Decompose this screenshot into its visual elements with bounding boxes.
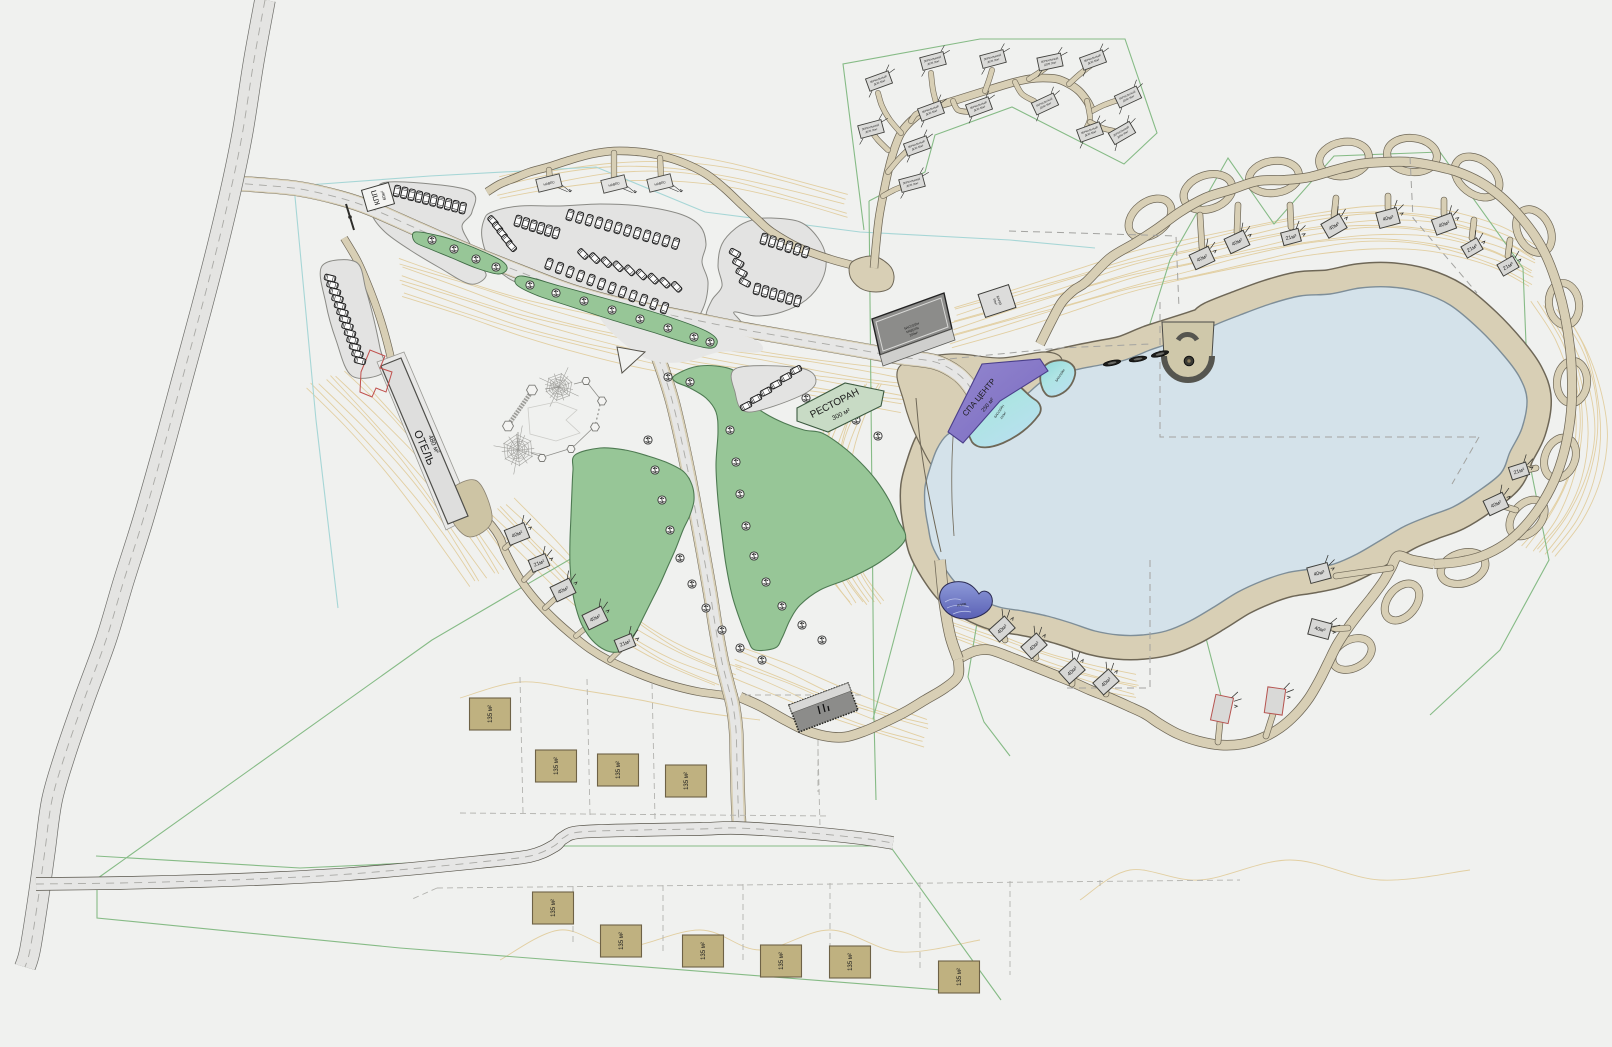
svg-text:135 м²: 135 м² (488, 705, 494, 723)
svg-text:135 м²: 135 м² (701, 942, 707, 960)
svg-text:135 м²: 135 м² (616, 761, 622, 779)
svg-text:135 м²: 135 м² (848, 953, 854, 971)
svg-text:135 м²: 135 м² (779, 952, 785, 970)
svg-text:135 м²: 135 м² (619, 932, 625, 950)
svg-text:135 м²: 135 м² (957, 968, 963, 986)
svg-text:135 м²: 135 м² (684, 772, 690, 790)
svg-text:135 м²: 135 м² (554, 757, 560, 775)
svg-text:135 м²: 135 м² (551, 899, 557, 917)
